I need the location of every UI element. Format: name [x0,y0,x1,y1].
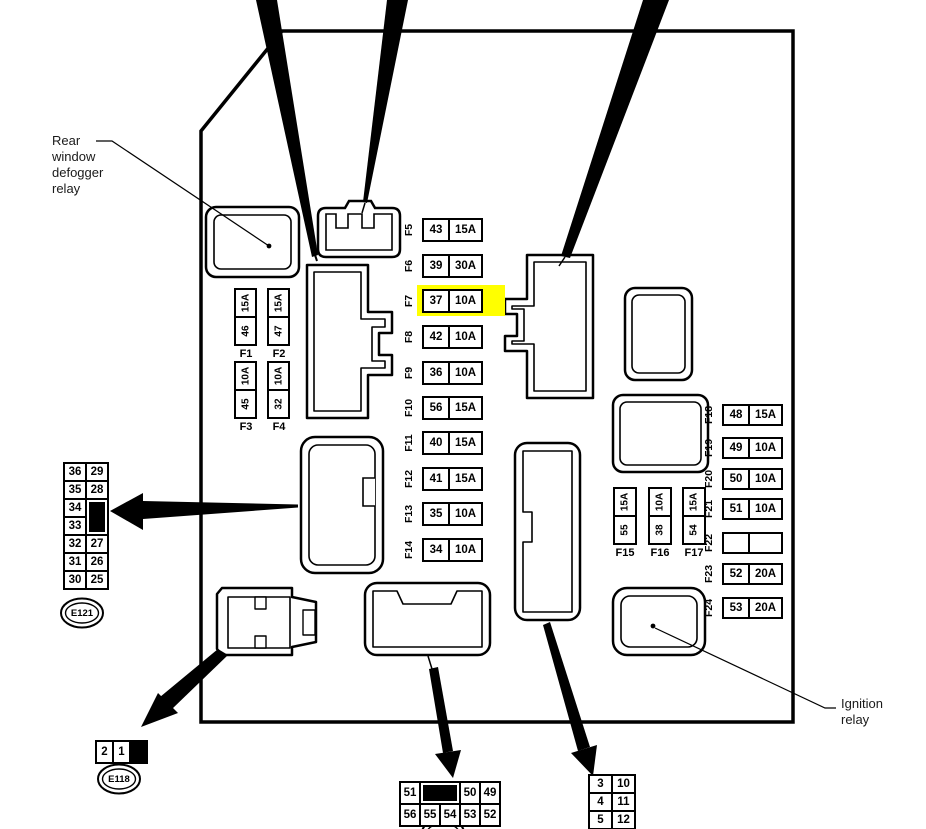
oval-label-e118: E118 [99,774,139,785]
bottom-right-pin-grid: 3 10 4 11 5 12 [588,774,636,829]
fuse-label: F9 [397,362,421,384]
pin-cell: 30 [65,572,85,588]
pin-cell: 32 [65,536,85,552]
fuse-number: 37 [424,291,448,311]
fuse-amperage: 10A [450,327,481,347]
pin-cell: 25 [87,572,107,588]
connector-center-big [301,437,383,573]
fuse-f10: F10 5615A [422,396,483,420]
fuse-f4: 10A32 F4 [267,361,290,419]
fuse-amperage: 10A [650,489,670,515]
pin-cell: 1 [114,742,129,762]
fuse-label: F7 [397,290,421,312]
fuse-label: F24 [698,597,720,619]
fuse-amperage: 10A [750,470,781,488]
fuse-amperage: 30A [450,256,481,276]
fuse-amperage: 15A [450,398,481,418]
pin-cell: 50 [461,783,479,803]
fuse-f20: F20 5010A [722,468,783,490]
fuse-amperage: 10A [450,504,481,524]
fuse-label: F15 [608,547,642,559]
fuse-f18: F18 4815A [722,404,783,426]
blocked-pin-cell [131,742,146,762]
fuse-amperage: 20A [750,599,781,617]
fuse-f6: F6 3930A [422,254,483,278]
pin-cell: 2 [97,742,112,762]
fuse-number: 32 [269,391,288,417]
callout-ignition-relay: Ignition relay [841,696,883,728]
fuse-number: 36 [424,363,448,383]
fuse-f19: F19 4910A [722,437,783,459]
pin-cell: 12 [613,812,634,828]
fuse-f23: F23 5220A [722,563,783,585]
fuse-f16: 10A38 F16 [648,487,672,545]
fuse-label: F16 [643,547,677,559]
fuse-number [724,534,748,552]
fuse-number: 46 [236,318,255,344]
fuse-amperage: 10A [269,363,288,389]
fuse-f11: F11 4015A [422,431,483,455]
fuse-amperage: 15A [450,469,481,489]
fuse-f14: F14 3410A [422,538,483,562]
fuse-f15: 15A55 F15 [613,487,637,545]
fuse-number: 47 [269,318,288,344]
fuse-amperage [750,534,781,552]
fuse-label: F14 [397,539,421,561]
fuse-label: F6 [397,255,421,277]
fuse-f12: F12 4115A [422,467,483,491]
fuse-f8: F8 4210A [422,325,483,349]
fuse-f24: F24 5320A [722,597,783,619]
fuse-label: F13 [397,503,421,525]
callout-rear-window-defogger-relay: Rear window defogger relay [52,133,103,197]
left-pin-grid: 36 29 35 28 34 33 32 27 31 26 30 25 [63,462,109,590]
pin-cell: 56 [401,805,419,825]
fuse-number: 53 [724,599,748,617]
fuse-number: 55 [615,517,635,543]
fuse-amperage: 15A [236,290,255,316]
fuse-number: 45 [236,391,255,417]
fuse-number: 35 [424,504,448,524]
fuse-label: F23 [698,563,720,585]
pin-cell: 55 [421,805,439,825]
fuse-label: F12 [397,468,421,490]
fuse-label: F3 [229,421,263,433]
fuse-f17: 15A54 F17 [682,487,706,545]
fuse-number: 48 [724,406,748,424]
pin-cell: 29 [87,464,107,480]
fuse-f22: F22 [722,532,783,554]
connector-bottom-left [217,588,316,655]
fuse-number: 39 [424,256,448,276]
fuse-f5: F5 4315A [422,218,483,242]
fuse-amperage: 15A [450,220,481,240]
fuse-amperage: 15A [684,489,704,515]
blocked-pin-cell [421,783,459,803]
fuse-label: F4 [262,421,296,433]
fuse-f1: 15A46 F1 [234,288,257,346]
fuse-number: 40 [424,433,448,453]
fuse-amperage: 15A [750,406,781,424]
fuse-amperage: 10A [236,363,255,389]
fuse-number: 49 [724,439,748,457]
fuse-f2: 15A47 F2 [267,288,290,346]
fuse-box-diagram: Rear window defogger relay Ignition rela… [0,0,926,829]
fuse-label: F1 [229,348,263,360]
fuse-amperage: 15A [450,433,481,453]
pin-cell: 34 [65,500,85,516]
pin-cell: 27 [87,536,107,552]
pin-cell: 26 [87,554,107,570]
fuse-amperage: 10A [750,500,781,518]
fuse-number: 41 [424,469,448,489]
pin-cell: 54 [441,805,459,825]
fuse-number: 42 [424,327,448,347]
fuse-label: F2 [262,348,296,360]
fuse-f21: F21 5110A [722,498,783,520]
rear-defogger-relay-shape [206,207,299,277]
fuse-number: 43 [424,220,448,240]
pin-cell: 49 [481,783,499,803]
fuse-amperage: 20A [750,565,781,583]
fuse-f9: F9 3610A [422,361,483,385]
oval-label-e121: E121 [62,608,102,619]
pin-cell: 28 [87,482,107,498]
pin-cell: 4 [590,794,611,810]
fuse-label: F11 [397,432,421,454]
fuse-amperage: 10A [750,439,781,457]
pin-cell: 5 [590,812,611,828]
pin-cell: 33 [65,518,85,534]
connector-bottom-middle [365,583,490,655]
fuse-amperage: 15A [269,290,288,316]
fuse-amperage: 10A [450,363,481,383]
pin-cell: 3 [590,776,611,792]
fuse-amperage: 15A [615,489,635,515]
pin-cell: 53 [461,805,479,825]
relay-small-horizontal [613,395,708,472]
fuse-number: 54 [684,517,704,543]
bottom-left-pin-row: 2 1 [95,740,148,764]
bottom-middle-pin-grid: 51 50 49 56 55 54 53 52 [399,781,501,827]
fuse-number: 51 [724,500,748,518]
pin-cell: 52 [481,805,499,825]
fuse-amperage: 10A [450,540,481,560]
pin-cell: 10 [613,776,634,792]
blocked-pin-cell [87,500,107,534]
fuse-number: 56 [424,398,448,418]
fuse-label: F8 [397,326,421,348]
relay-small-vertical [625,288,692,380]
fuse-number: 34 [424,540,448,560]
socket-connector-top [318,201,400,257]
fuse-f7: F7 3710A [422,289,483,313]
fuse-label: F17 [677,547,711,559]
fuse-number: 52 [724,565,748,583]
connector-tall-narrow [515,443,580,620]
fuse-amperage: 10A [450,291,481,311]
pin-cell: 36 [65,464,85,480]
fuse-label: F18 [698,404,720,426]
fuse-label: F19 [698,437,720,459]
fuse-f3: 10A45 F3 [234,361,257,419]
fuse-f13: F13 3510A [422,502,483,526]
fuse-label: F5 [397,219,421,241]
fuse-label: F10 [397,397,421,419]
fuse-number: 38 [650,517,670,543]
fuse-number: 50 [724,470,748,488]
pin-cell: 31 [65,554,85,570]
pin-cell: 11 [613,794,634,810]
pin-cell: 35 [65,482,85,498]
pin-cell: 51 [401,783,419,803]
